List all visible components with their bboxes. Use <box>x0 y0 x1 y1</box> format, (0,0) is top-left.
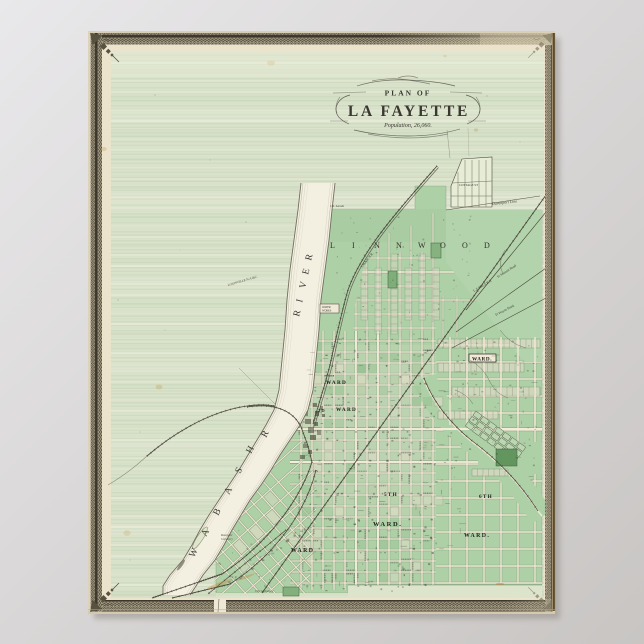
svg-text:2D: 2D <box>318 408 326 413</box>
svg-text:6TH: 6TH <box>479 494 493 500</box>
svg-text:O: O <box>462 241 468 250</box>
svg-text:PLAN OF: PLAN OF <box>385 89 432 98</box>
svg-text:N: N <box>396 241 402 250</box>
svg-text:Population, 26,060.: Population, 26,060. <box>383 123 432 129</box>
svg-text:I: I <box>352 241 355 250</box>
svg-text:W: W <box>418 241 426 250</box>
svg-text:D: D <box>484 241 490 250</box>
svg-text:WARD.: WARD. <box>464 533 490 539</box>
svg-text:N: N <box>374 241 380 250</box>
svg-text:WARD: WARD <box>291 548 314 554</box>
svg-text:WARD: WARD <box>326 380 347 386</box>
svg-text:COTTAGE ST: COTTAGE ST <box>459 183 478 187</box>
svg-text:LA FAYETTE: LA FAYETTE <box>348 103 470 120</box>
svg-text:WORKS: WORKS <box>322 310 332 313</box>
svg-text:Cemetery: Cemetery <box>221 537 233 541</box>
svg-text:WARD: WARD <box>336 407 357 413</box>
svg-text:Cd. Lands: Cd. Lands <box>330 204 345 208</box>
svg-text:WARD.: WARD. <box>472 356 492 362</box>
svg-text:O: O <box>440 241 446 250</box>
svg-text:City Cemetery: City Cemetery <box>255 589 274 593</box>
svg-text:WARD.: WARD. <box>373 521 403 528</box>
svg-text:L: L <box>330 241 335 250</box>
svg-text:5TH: 5TH <box>384 492 398 498</box>
